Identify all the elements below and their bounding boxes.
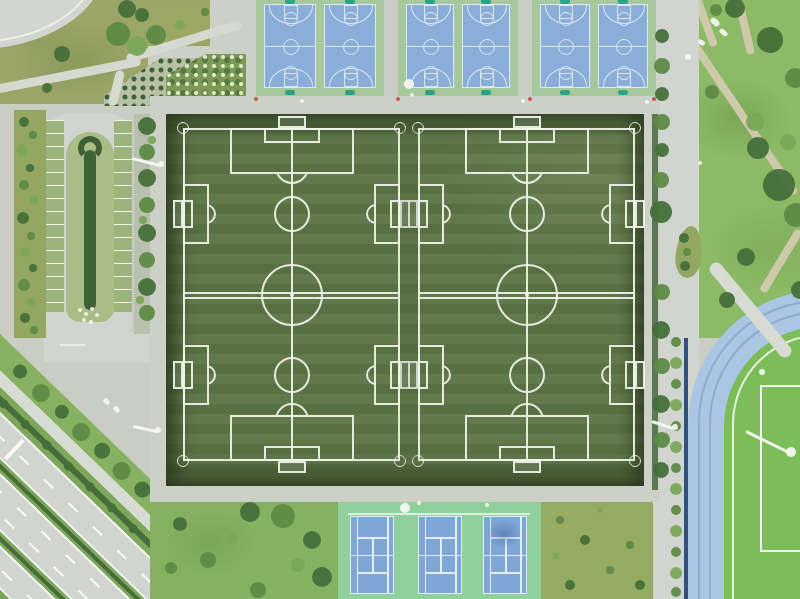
cross-pitch-side-goal — [173, 361, 183, 389]
bottom-lawn-trees — [291, 558, 305, 572]
cross-pitch-penalty-arc — [444, 203, 453, 225]
roadside-tree — [91, 439, 114, 462]
track-hedge-shrubs — [671, 379, 681, 389]
left-verge-shrubs — [29, 264, 37, 272]
court-center-circle — [616, 39, 632, 55]
cross-pitch-center-circle — [509, 357, 545, 393]
basketball-hoop-post — [481, 90, 491, 95]
center-strip-shade — [400, 128, 418, 461]
right-lawn-trees — [785, 68, 800, 88]
court-3pt-arc-bottom — [329, 68, 373, 88]
track-hedge-shrubs — [670, 441, 682, 453]
court-3pt-arc-bottom — [603, 68, 645, 88]
basketball-hoop-post — [618, 90, 628, 95]
cross-pitch-goal-box — [418, 361, 428, 389]
arc — [366, 365, 374, 385]
parking-hedge-trees — [138, 278, 156, 296]
right-road-trees — [653, 172, 669, 188]
infield-box-side-line — [760, 385, 762, 552]
right-road-trees — [655, 29, 669, 43]
cross-pitch-goal-box — [183, 361, 193, 389]
cross-pitch-penalty-arc — [444, 364, 453, 386]
court-center-circle — [479, 39, 495, 55]
parking-hedge-trees — [139, 144, 155, 160]
track-hedge-shrubs — [670, 483, 682, 495]
pitch-center-spot — [525, 293, 529, 297]
left-verge-shrubs — [19, 180, 29, 190]
parking-hedge-trees — [148, 136, 156, 144]
parking-flower-bed — [89, 320, 93, 324]
pitch-center-spot — [290, 293, 294, 297]
left-verge-shrubs — [16, 144, 28, 156]
walkway-light-fixtures — [759, 369, 765, 375]
track-hedge-shrubs — [670, 357, 682, 369]
track-hedge-shrubs — [671, 505, 681, 515]
pitch-penalty-arc — [508, 403, 546, 415]
walkway-light-fixtures — [698, 161, 702, 165]
tennis-center-service-line — [440, 537, 442, 573]
track-fence — [684, 338, 688, 599]
walkway-light-fixtures — [645, 100, 649, 104]
basketball-pad — [398, 0, 518, 96]
left-verge-shrubs — [27, 298, 35, 306]
track-hedge-shrubs — [671, 463, 681, 473]
parking-stalls-left — [46, 120, 64, 312]
court-3pt-arc-top — [329, 4, 373, 24]
infield-box-top-line — [760, 385, 800, 387]
court-corner-markers — [254, 97, 258, 101]
right-road-trees — [654, 284, 670, 300]
left-verge-shrubs — [20, 247, 30, 257]
right-lawn-trees — [710, 4, 722, 16]
tennis-right-lawn-shrubs — [597, 507, 603, 513]
basketball-court — [324, 4, 376, 88]
white-object — [102, 397, 111, 405]
bottom-lawn-trees — [240, 502, 260, 522]
hill-trees — [127, 36, 147, 56]
pitch-corner-arc — [629, 455, 641, 467]
parking-median-hedge-arch — [78, 136, 102, 160]
arc — [444, 365, 451, 385]
left-verge-shrubs — [29, 131, 37, 139]
walkway-light-fixtures — [400, 503, 410, 513]
court-3pt-arc-top — [603, 4, 645, 24]
pitch-goal-frame — [278, 116, 306, 128]
basketball-hoop-post — [285, 0, 295, 4]
parking-flower-bed — [90, 307, 94, 311]
track-hedge-shrubs — [671, 337, 681, 347]
tennis-court-shade — [486, 519, 522, 549]
hill-trees — [135, 8, 149, 22]
cross-pitch-goal-box — [183, 200, 193, 228]
left-verge-shrubs — [26, 164, 34, 172]
bottom-lawn-trees — [226, 532, 238, 544]
tennis-right-lawn-shrubs — [565, 580, 575, 590]
right-road-trees — [655, 143, 669, 157]
tennis-right-lawn-shrubs — [553, 553, 559, 559]
basketball-court — [264, 4, 316, 88]
infield-box-bottom-line — [760, 550, 800, 552]
road-island-shrubs — [679, 233, 689, 243]
hill-trees — [42, 83, 52, 93]
arc — [444, 204, 451, 224]
bottom-lawn-trees — [165, 562, 177, 574]
parking-flower-bed — [78, 308, 82, 312]
court-3pt-arc-top — [545, 4, 587, 24]
cross-pitch-penalty-arc — [600, 364, 609, 386]
cross-pitch-goal-box — [418, 200, 428, 228]
basketball-pad — [532, 0, 656, 96]
basketball-hoop-post — [481, 0, 491, 4]
parking-hedge-trees — [139, 197, 155, 213]
arc — [601, 365, 609, 385]
court-corner-markers — [528, 97, 532, 101]
cross-pitch-penalty-arc — [365, 364, 374, 386]
parking-hedge-trees — [139, 305, 155, 321]
left-verge-shrubs — [19, 117, 29, 127]
cross-pitch-goal-box — [625, 200, 635, 228]
cross-pitch-penalty-arc — [600, 203, 609, 225]
soccer-walk-left — [150, 96, 166, 514]
cross-pitch-side-goal — [635, 361, 645, 389]
court-3pt-arc-top — [467, 4, 507, 24]
walkway-light-fixtures — [300, 99, 304, 103]
basketball-hoop-post — [560, 90, 570, 95]
basketball-hoop-post — [345, 90, 355, 95]
parking-stalls-right — [114, 120, 132, 312]
pitch-corner-arc — [177, 122, 189, 134]
tennis-right-lawn-shrubs — [606, 566, 614, 574]
walkway-light-fixtures — [410, 93, 414, 97]
court-3pt-arc-bottom — [269, 68, 313, 88]
cross-pitch-center-circle — [509, 196, 545, 232]
bottom-lawn-trees — [200, 552, 216, 568]
court-3pt-arc-bottom — [467, 68, 507, 88]
basketball-hoop-post — [425, 0, 435, 4]
pitch-penalty-arc — [273, 174, 311, 186]
court-center-circle — [343, 39, 359, 55]
walkway-light-fixtures — [404, 79, 414, 89]
court-3pt-arc-top — [411, 4, 451, 24]
pitch-goal-frame — [513, 116, 541, 128]
tennis-right-lawn-shrubs — [626, 541, 634, 549]
road-island-shrubs — [680, 261, 690, 271]
left-verge-shrubs — [27, 232, 35, 240]
arc — [275, 174, 309, 184]
right-road-trees — [650, 201, 672, 223]
tennis-right-lawn-shrubs — [635, 580, 645, 590]
arc — [601, 204, 609, 224]
right-lawn-trees — [747, 137, 769, 159]
cross-pitch-center-circle — [274, 196, 310, 232]
pitch-penalty-arc — [508, 174, 546, 186]
basketball-hoop-post — [425, 90, 435, 95]
court-center-circle — [423, 39, 439, 55]
parking-hedge-trees — [139, 252, 155, 268]
track-hedge-shrubs — [670, 567, 682, 579]
bottom-lawn-trees — [173, 517, 187, 531]
cross-pitch-side-goal — [635, 200, 645, 228]
track-hedge-shrubs — [671, 587, 681, 597]
basketball-hoop-post — [345, 0, 355, 4]
road-island-shrubs — [683, 248, 691, 256]
cross-pitch-goal-box — [625, 361, 635, 389]
right-road-trees — [654, 432, 670, 448]
left-verge-shrubs — [18, 279, 30, 291]
right-road-trees — [654, 58, 670, 74]
tennis-court — [418, 516, 462, 594]
court-3pt-arc-top — [269, 4, 313, 24]
pitch-goal-box — [499, 446, 555, 461]
parking-hedge-trees — [139, 216, 147, 224]
cross-pitch-penalty-arc — [209, 203, 218, 225]
hill-trees — [54, 46, 70, 62]
arc — [209, 204, 216, 224]
walkway-light-fixtures — [521, 99, 525, 103]
street-lamp-head — [786, 447, 796, 457]
arc — [275, 403, 309, 415]
white-object — [112, 405, 121, 413]
cross-pitch-goal-box — [390, 361, 400, 389]
soccer-walk-top — [150, 96, 660, 114]
cross-pitch-side-goal — [173, 200, 183, 228]
cross-pitch-penalty-arc — [365, 203, 374, 225]
cross-pitch-center-circle — [274, 357, 310, 393]
parking-hedge-trees — [138, 224, 156, 242]
pitch-goal-box — [499, 128, 555, 143]
left-verge-shrubs — [30, 196, 38, 204]
bottom-lawn-trees — [271, 504, 295, 528]
right-lawn-trees — [757, 27, 783, 53]
parking-hedge-trees — [138, 169, 156, 187]
hill-trees — [201, 8, 209, 16]
parking-flower-bed — [84, 312, 88, 316]
right-road-trees — [654, 358, 670, 374]
cross-pitch-penalty-arc — [209, 364, 218, 386]
walkway-light-fixtures — [417, 501, 421, 505]
basketball-hoop-post — [560, 0, 570, 4]
court-center-circle — [283, 39, 299, 55]
hill-trees — [175, 20, 185, 30]
basketball-court — [406, 4, 454, 88]
walkway-light-fixtures — [685, 54, 691, 60]
bottom-lawn-trees — [312, 567, 332, 587]
pitch-goal-frame — [513, 461, 541, 473]
parking-hedge-trees — [138, 117, 156, 135]
basketball-court — [540, 4, 590, 88]
right-road-trees — [652, 321, 670, 339]
basketball-court — [462, 4, 510, 88]
right-lawn-trees — [746, 113, 764, 131]
aerial-photo-sports-complex — [0, 0, 800, 599]
right-lawn-trees — [763, 169, 795, 201]
arc — [510, 403, 544, 415]
tennis-right-lawn-shrubs — [556, 516, 564, 524]
court-3pt-arc-bottom — [545, 68, 587, 88]
track-hedge-shrubs — [671, 547, 681, 557]
tennis-right-lawn-shrubs — [580, 535, 590, 545]
pitch-corner-arc — [629, 122, 641, 134]
pitch-goal-box — [264, 446, 320, 461]
soccer-walk-bottom — [150, 486, 660, 502]
right-lawn-trees — [737, 248, 755, 266]
roadside-tree — [52, 402, 72, 422]
walkway-light-fixtures — [485, 503, 489, 507]
roadside-tree — [10, 362, 30, 382]
basketball-court — [598, 4, 648, 88]
track-hedge-shrubs — [670, 525, 682, 537]
arc — [366, 204, 374, 224]
tennis-court — [350, 516, 394, 594]
parking-flower-bed — [82, 318, 86, 322]
pitch-penalty-arc — [273, 403, 311, 415]
right-lawn-trees — [780, 134, 796, 150]
parking-access-mark — [60, 344, 86, 346]
bottom-lawn-trees — [303, 531, 321, 549]
right-lawn-trees — [705, 85, 719, 99]
right-road-trees — [655, 87, 669, 101]
left-verge-shrubs — [17, 212, 29, 224]
bottom-lawn-trees — [250, 582, 266, 598]
court-3pt-arc-bottom — [411, 68, 451, 88]
left-verge-shrubs — [30, 326, 38, 334]
court-corner-markers — [652, 97, 656, 101]
cross-pitch-goal-box — [390, 200, 400, 228]
hill-trees — [118, 0, 136, 18]
right-lawn-trees — [719, 292, 735, 308]
arc — [510, 174, 544, 184]
arc — [209, 365, 216, 385]
left-verge-shrubs — [20, 313, 30, 323]
parking-median-hedge — [84, 150, 96, 310]
tennis-court — [483, 516, 527, 594]
pitch-corner-arc — [177, 455, 189, 467]
right-road-trees — [653, 462, 669, 478]
parking-flower-bed — [95, 313, 99, 317]
basketball-pad — [256, 0, 384, 96]
track-hedge-shrubs — [670, 399, 682, 411]
parking-hedge-trees — [136, 296, 144, 304]
court-corner-markers — [396, 97, 400, 101]
pitch-goal-box — [264, 128, 320, 143]
tennis-top-line — [348, 513, 530, 515]
hill-trees — [146, 25, 166, 45]
pitch-goal-frame — [278, 461, 306, 473]
right-road-trees — [652, 395, 670, 413]
basketball-hoop-post — [618, 0, 628, 4]
right-road-trees — [654, 114, 670, 130]
tennis-center-service-line — [372, 537, 374, 573]
basketball-hoop-post — [285, 90, 295, 95]
court-center-circle — [558, 39, 574, 55]
